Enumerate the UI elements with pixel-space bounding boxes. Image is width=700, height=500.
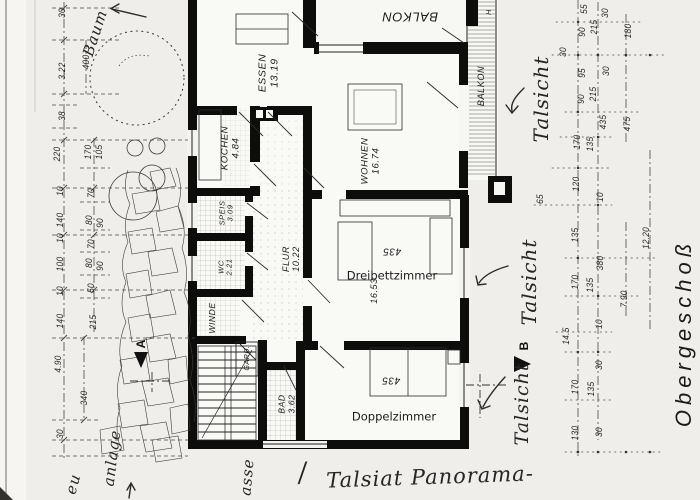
floor-plan-drawing — [0, 0, 700, 500]
scanned-floor-plan-page: BALKON ESSEN 13.19 KOCHEN 4.84 WOHNEN 16… — [0, 0, 700, 500]
room-interiors — [197, 0, 498, 443]
